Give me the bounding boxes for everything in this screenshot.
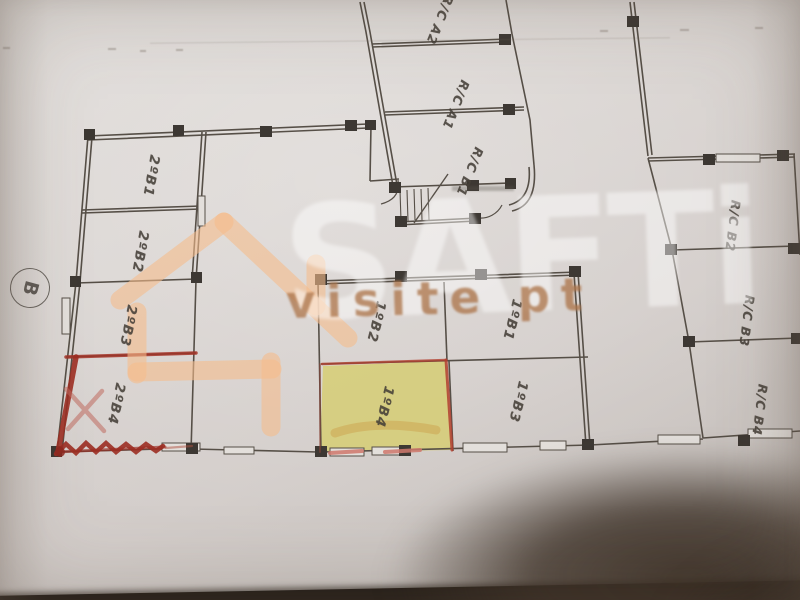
pencil-dash — [108, 48, 116, 50]
pencil-dash — [600, 30, 608, 32]
sheet-marker-letter: B — [17, 278, 42, 298]
red-x-mark — [66, 389, 104, 431]
pencil-dash — [755, 27, 763, 29]
pencil-dash — [176, 49, 183, 51]
pencil-dash — [680, 29, 689, 31]
pencil-dash — [3, 47, 10, 49]
pencil-dash — [140, 50, 146, 52]
floor-plan-photo: 2ºB1 2ºB2 2ºB3 2ºB4 1ºB2 1ºB1 1ºB4 1ºB3 … — [0, 0, 800, 600]
watermark-caption-text: visite pt — [285, 272, 593, 325]
